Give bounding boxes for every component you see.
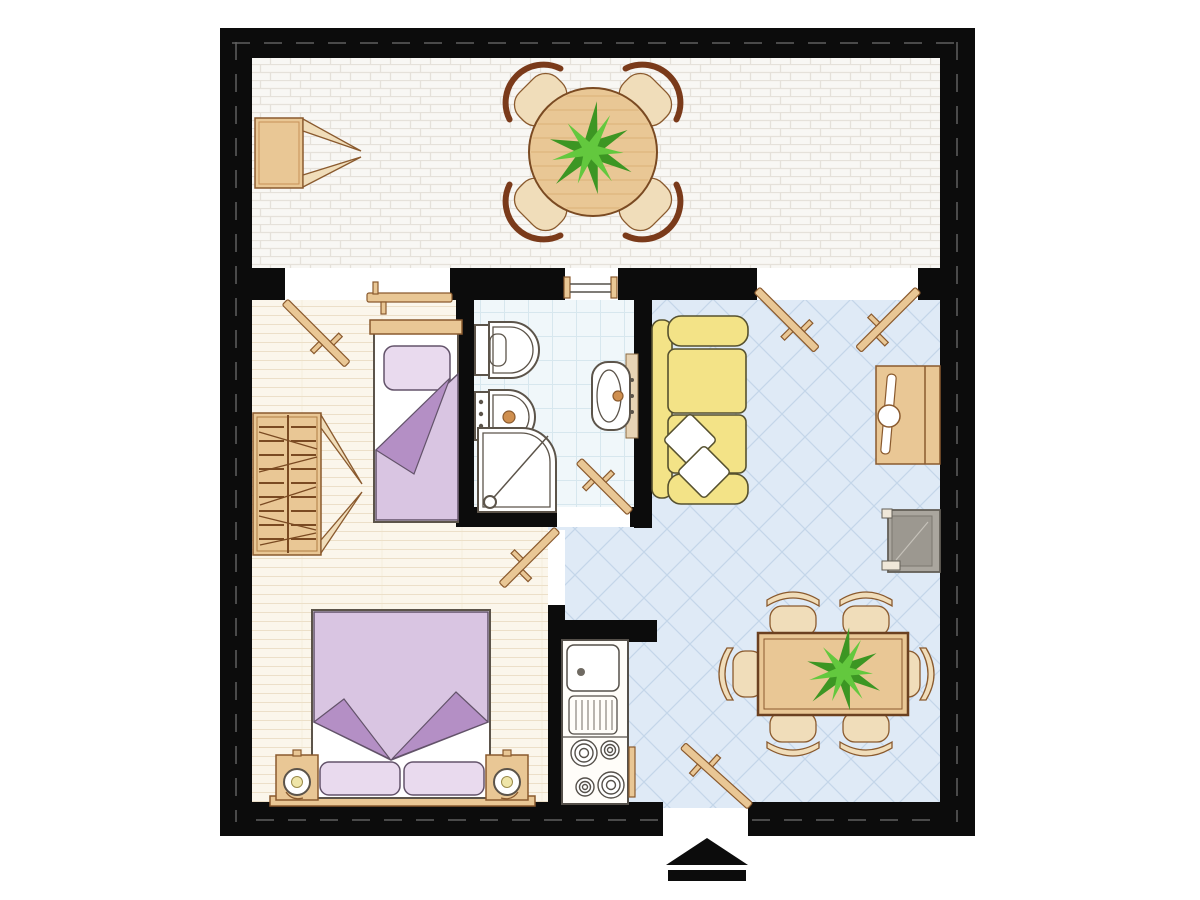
cabinet-body [255, 118, 303, 188]
floor-plan [0, 0, 1200, 900]
lamp-bulb [292, 777, 303, 788]
nightstand-left [276, 750, 318, 800]
wall-kitchen-stub [553, 620, 657, 642]
wall-bottom-left [252, 802, 663, 836]
bed-headboard [370, 320, 462, 334]
toilet-bowl [489, 322, 539, 378]
oven-handle [629, 747, 635, 797]
bed-pillow [384, 346, 450, 390]
drainer-lines [576, 700, 612, 730]
wall-band [618, 268, 757, 300]
threshold [757, 268, 918, 300]
kitchen-sink [567, 645, 619, 691]
single-bed [370, 320, 462, 522]
kitchen-unit [562, 640, 635, 804]
tv-cabinet [876, 366, 940, 464]
door-handle [381, 302, 386, 314]
window-cap [564, 277, 570, 298]
basin-dot [630, 378, 634, 382]
sofa-cushion [668, 349, 746, 413]
nightstand-knob [503, 750, 511, 756]
entrance-arrow-bar [668, 870, 746, 881]
shower [478, 428, 556, 512]
wall-band [918, 268, 940, 300]
toilet-tank [475, 325, 489, 375]
basin-dot [630, 394, 634, 398]
sofa [652, 316, 748, 504]
threshold [557, 507, 630, 527]
bed-pillow [404, 762, 484, 795]
basin-tap [613, 391, 623, 401]
lamp-bulb [502, 777, 513, 788]
window-cap [611, 277, 617, 298]
sink-drain [577, 668, 585, 676]
bed-pillow [320, 762, 400, 795]
wall-band [252, 268, 285, 300]
wall-bath-bottom-stub [630, 507, 652, 527]
door-leaf-closed [367, 293, 452, 302]
tv-stand-circle [878, 405, 900, 427]
armchair-arm [882, 561, 900, 570]
armchair [882, 509, 940, 572]
double-bed [312, 610, 490, 798]
toilet [475, 322, 539, 378]
sofa-armrest [668, 316, 748, 346]
wall-band [450, 268, 565, 300]
armchair-arm [882, 509, 892, 518]
bidet-drain [503, 411, 515, 423]
shower-drain [484, 496, 496, 508]
washbasin [592, 354, 638, 438]
wall-bottom-right [748, 802, 940, 836]
bidet-tap-dot [479, 400, 483, 404]
basin-dot [630, 410, 634, 414]
basin-body [592, 362, 630, 430]
nightstand-knob [293, 750, 301, 756]
bidet-tap-dot [479, 412, 483, 416]
door-handle [373, 282, 378, 294]
nightstand-right [486, 750, 528, 800]
